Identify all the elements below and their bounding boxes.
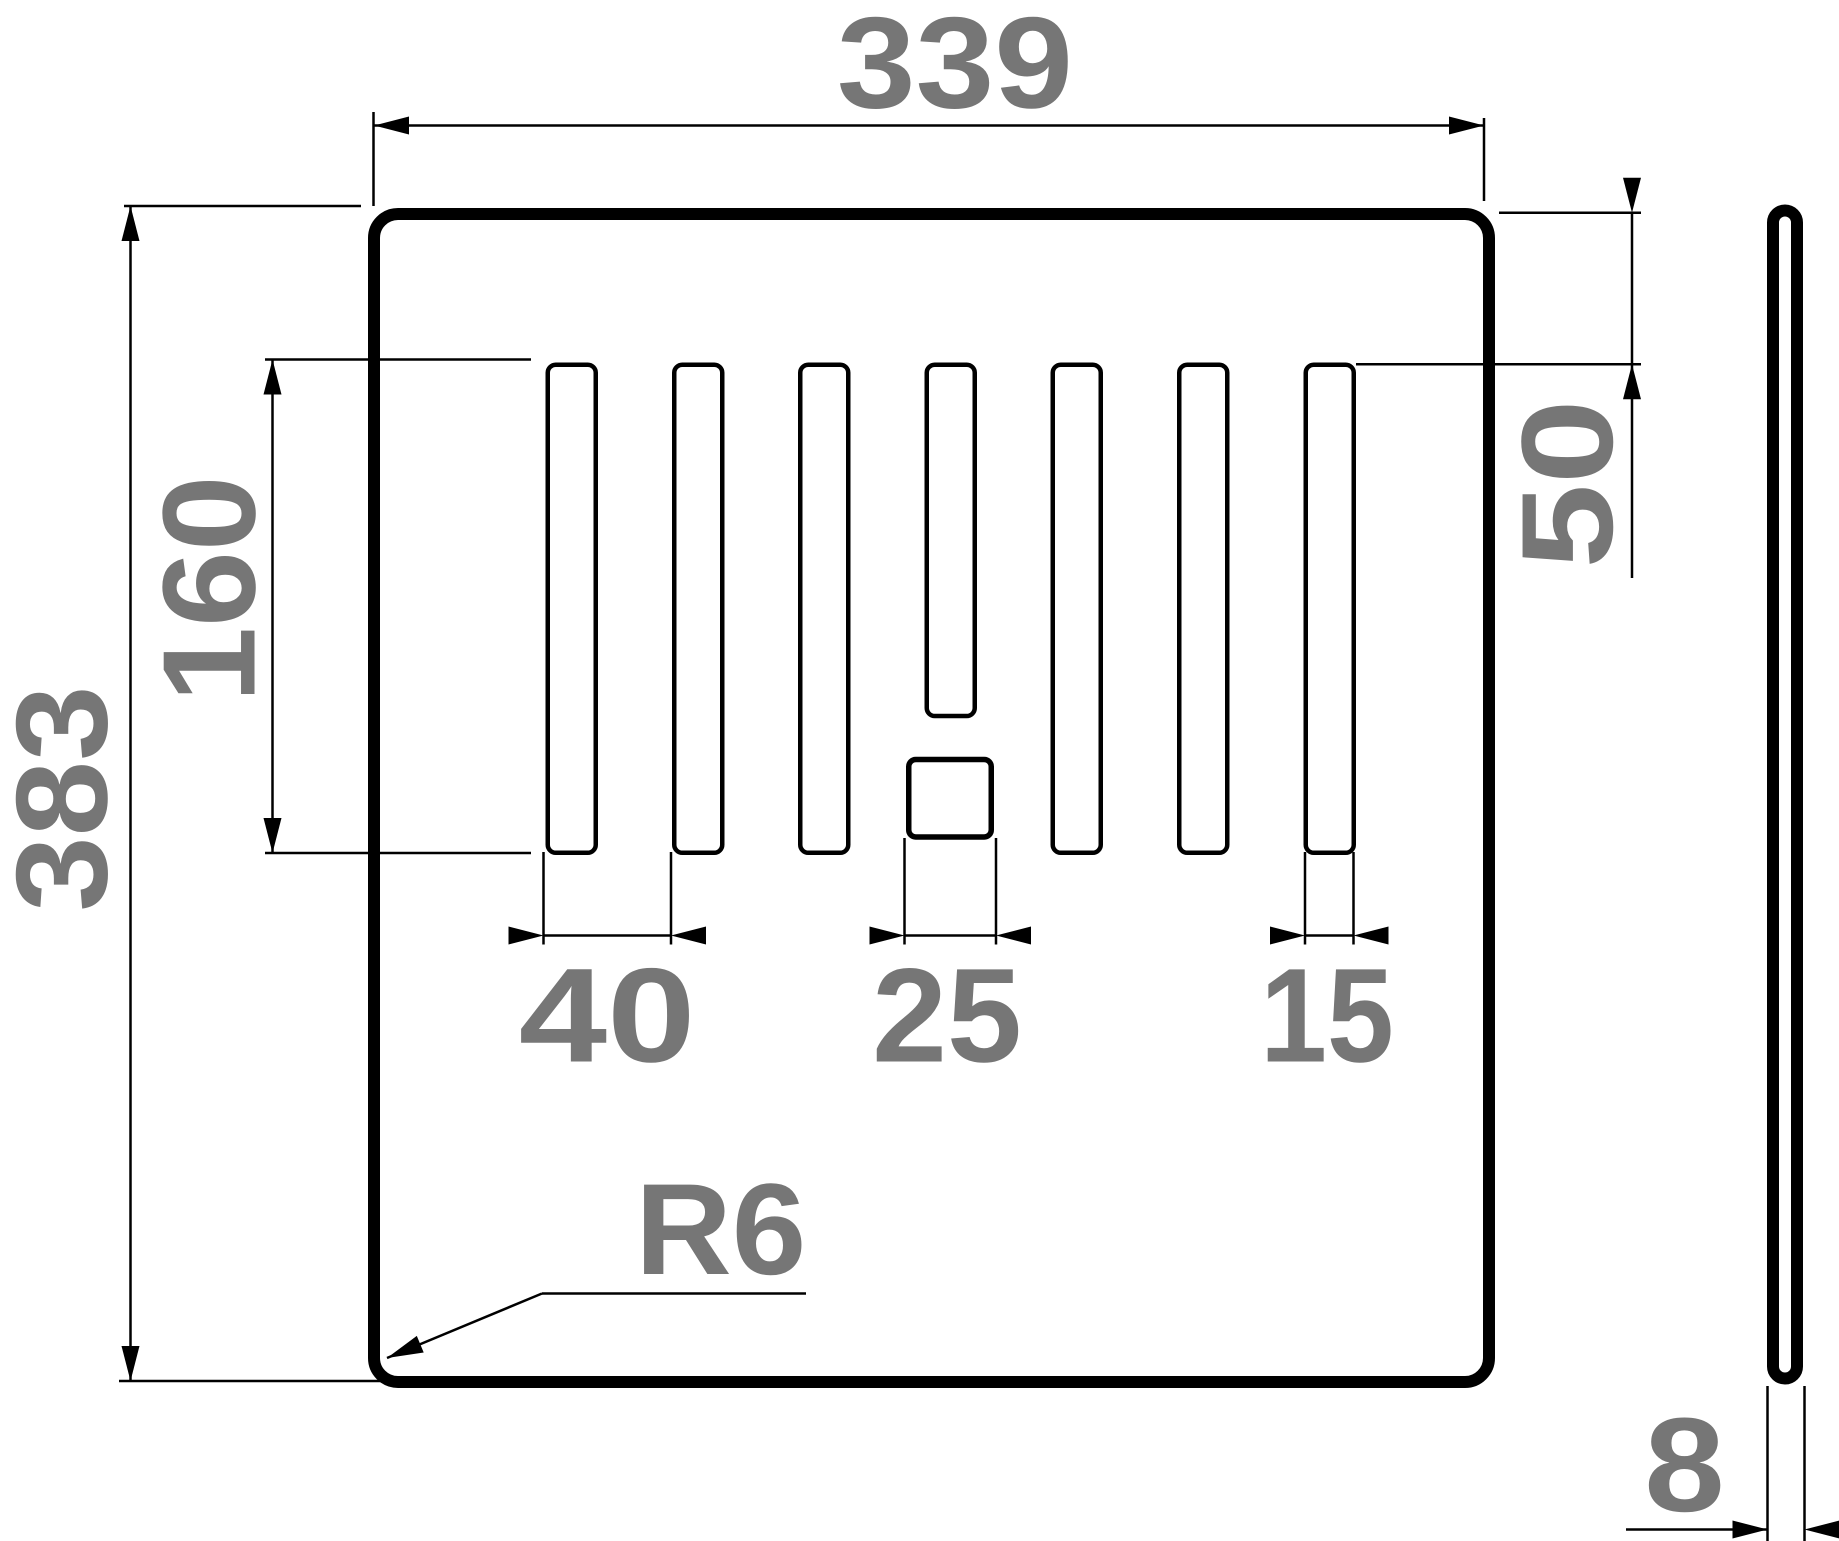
svg-text:25: 25: [872, 941, 1022, 1091]
svg-text:40: 40: [519, 941, 696, 1091]
svg-text:15: 15: [1260, 940, 1394, 1089]
svg-text:R6: R6: [635, 1157, 806, 1302]
svg-text:339: 339: [837, 0, 1073, 135]
svg-text:160: 160: [136, 475, 283, 702]
svg-text:8: 8: [1644, 1390, 1724, 1540]
svg-text:50: 50: [1494, 399, 1639, 568]
svg-text:383: 383: [0, 685, 135, 911]
